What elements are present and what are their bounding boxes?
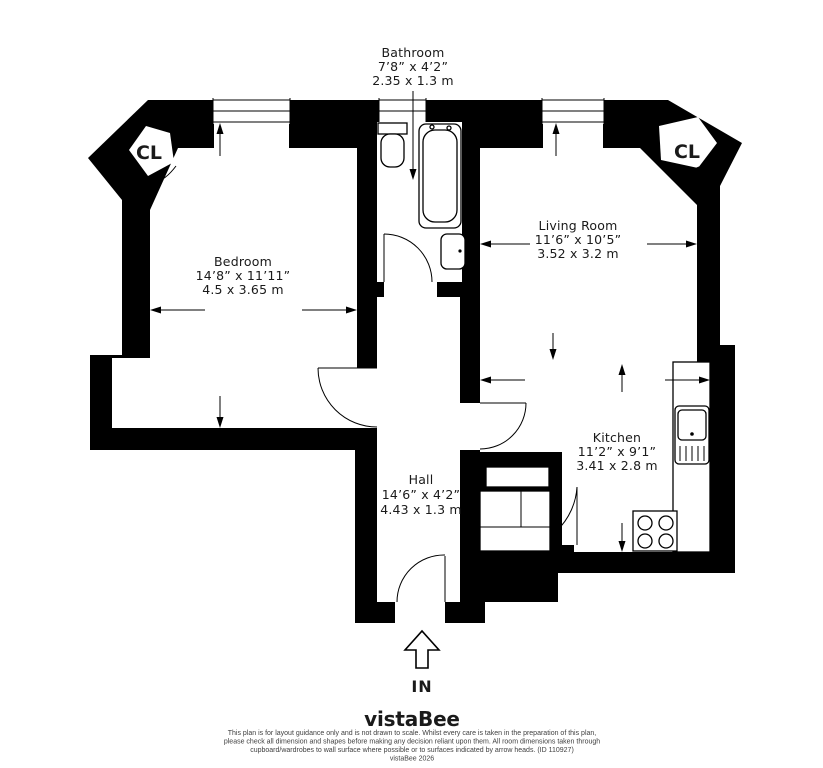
bathtub-icon	[419, 124, 461, 228]
hall-area	[377, 297, 460, 602]
hall-storage-closet	[460, 452, 562, 562]
toilet-icon	[378, 123, 407, 167]
svg-text:3.41 x 2.8 m: 3.41 x 2.8 m	[576, 458, 658, 473]
svg-text:11’6” x 10’5”: 11’6” x 10’5”	[535, 232, 622, 247]
svg-text:4.5 x 3.65 m: 4.5 x 3.65 m	[202, 282, 284, 297]
living-room-label: Living Room 11’6” x 10’5” 3.52 x 3.2 m	[535, 218, 622, 261]
entrance-marker: IN	[405, 631, 439, 696]
bedroom-window	[213, 98, 290, 148]
disclaimer-line-3: cupboard/wardrobes to wall surface where…	[250, 747, 574, 754]
closet-left-label: CL	[136, 142, 162, 164]
svg-text:Kitchen: Kitchen	[593, 430, 641, 445]
footer: vistaBee This plan is for layout guidanc…	[224, 707, 600, 763]
closet-right-label: CL	[674, 141, 700, 163]
living-room-window	[542, 98, 604, 148]
bathroom-window	[379, 98, 426, 124]
svg-text:Living Room: Living Room	[539, 218, 618, 233]
room-areas	[112, 117, 717, 602]
floor-plan-page: IN Bathroom 7’8” x 4’2” 2.35 x 1.3 m Bed…	[0, 0, 823, 768]
svg-text:14’8” x 11’11”: 14’8” x 11’11”	[196, 268, 291, 283]
svg-text:14’6” x 4’2”: 14’6” x 4’2”	[382, 487, 460, 502]
stove-icon	[633, 511, 677, 551]
svg-text:4.43 x 1.3 m: 4.43 x 1.3 m	[380, 502, 462, 517]
svg-text:Bathroom: Bathroom	[382, 45, 445, 60]
svg-text:Bedroom: Bedroom	[214, 254, 272, 269]
svg-text:11’2” x 9’1”: 11’2” x 9’1”	[578, 444, 656, 459]
bathroom-label: Bathroom 7’8” x 4’2” 2.35 x 1.3 m	[372, 45, 454, 88]
kitchen-wall-step	[697, 345, 710, 363]
disclaimer-line-4: vistaBee 2026	[390, 756, 434, 763]
entrance-arrow-icon	[405, 631, 439, 668]
bathroom-sink-icon	[441, 234, 465, 269]
floor-plan-svg: IN Bathroom 7’8” x 4’2” 2.35 x 1.3 m Bed…	[0, 0, 823, 768]
entrance-label: IN	[411, 677, 432, 696]
disclaimer-line-1: This plan is for layout guidance only an…	[228, 730, 597, 737]
vistabee-logo: vistaBee	[364, 707, 460, 731]
disclaimer-line-2: please check all dimension and shapes be…	[224, 739, 600, 746]
svg-text:2.35 x 1.3 m: 2.35 x 1.3 m	[372, 73, 454, 88]
kitchen-sink-icon	[675, 406, 709, 464]
svg-text:Hall: Hall	[409, 472, 434, 487]
svg-text:7’8” x 4’2”: 7’8” x 4’2”	[378, 59, 448, 74]
svg-text:3.52 x 3.2 m: 3.52 x 3.2 m	[537, 246, 619, 261]
